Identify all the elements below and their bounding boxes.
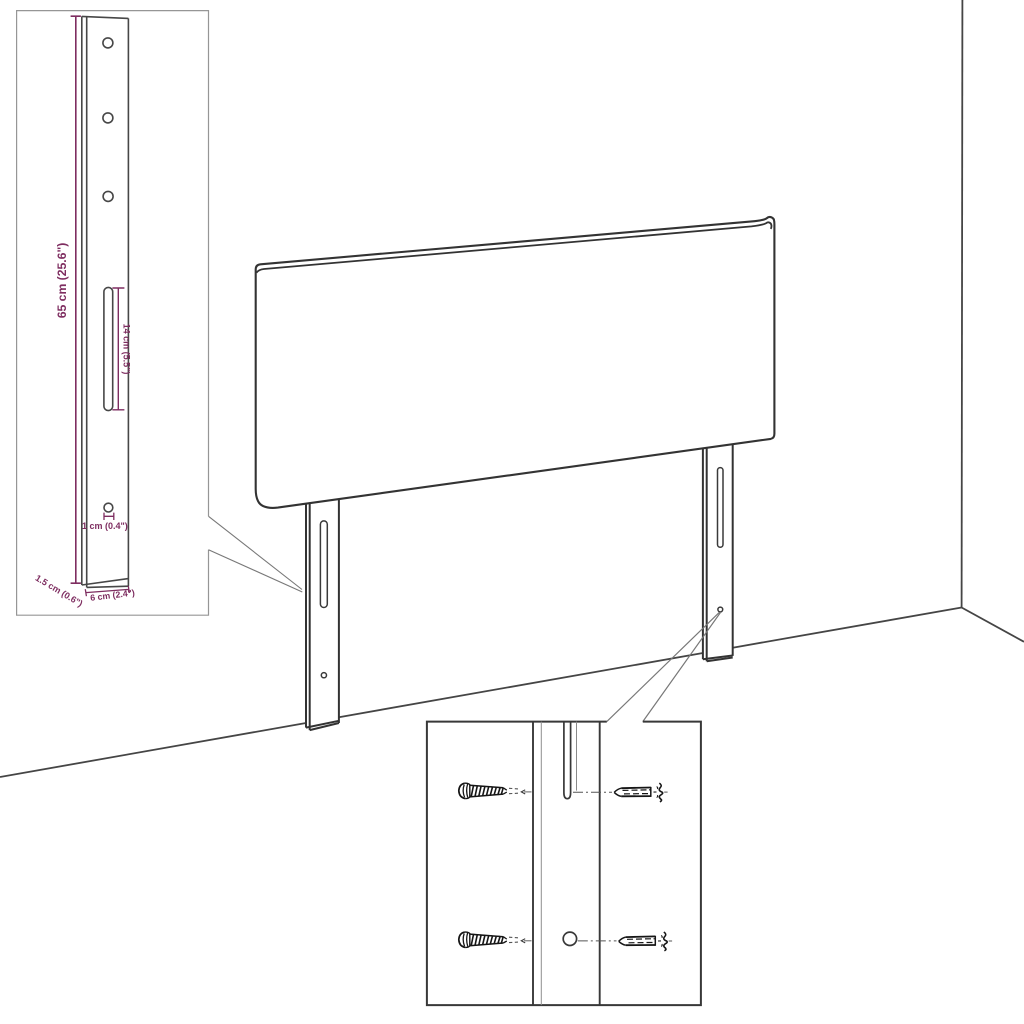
svg-text:65 cm (25.6"): 65 cm (25.6") xyxy=(55,243,69,319)
svg-text:1.5 cm (0.6"): 1.5 cm (0.6") xyxy=(34,573,85,609)
svg-text:6 cm (2.4"): 6 cm (2.4") xyxy=(90,588,136,603)
svg-text:14 cm (5.5"): 14 cm (5.5") xyxy=(121,324,131,375)
svg-text:1 cm (0.4"): 1 cm (0.4") xyxy=(82,521,128,531)
